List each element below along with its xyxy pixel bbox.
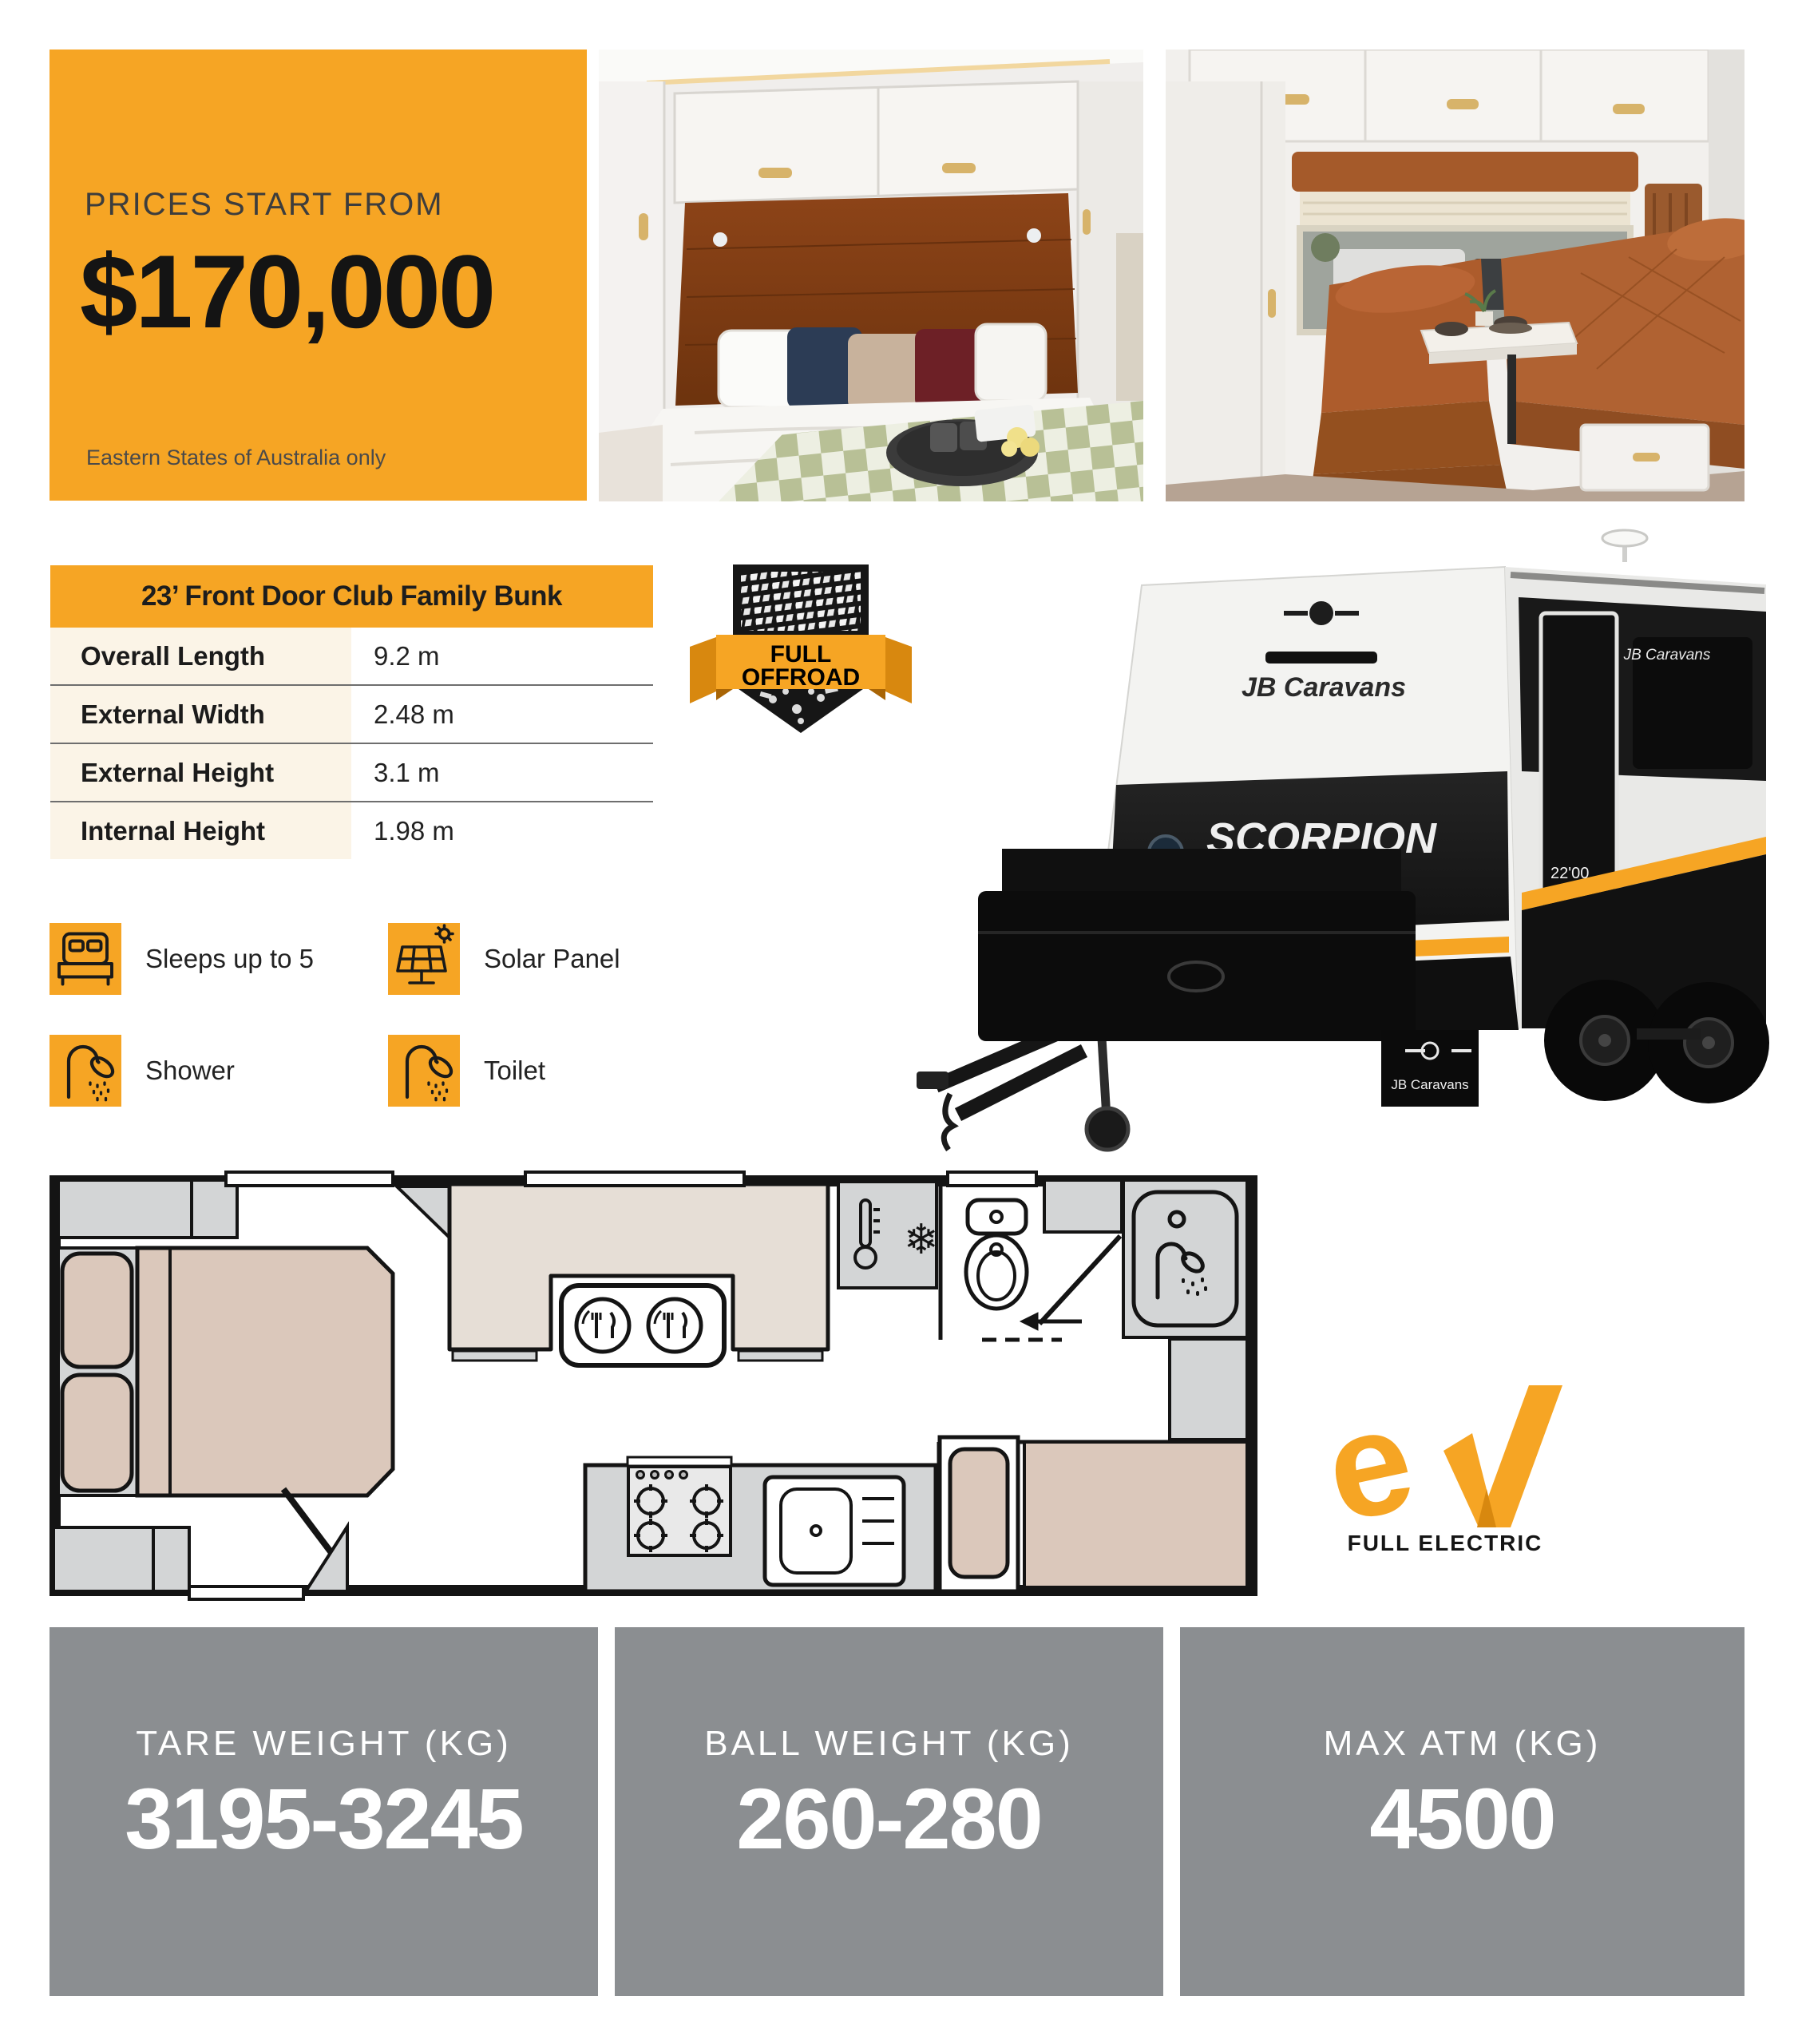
spec-label: External Height	[50, 744, 351, 801]
feature-shower: Shower	[50, 1035, 235, 1107]
price-eyebrow: PRICES START FROM	[85, 187, 444, 223]
spec-value: 1.98 m	[351, 802, 653, 859]
lounge-photo-art	[1166, 50, 1744, 501]
caravan-brand-side: JB Caravans	[1623, 647, 1711, 664]
feature-toilet: Toilet	[388, 1035, 545, 1107]
floorplan-drawing: ❄	[50, 1170, 1257, 1601]
table-row: Overall Length 9.2 m	[50, 628, 653, 684]
sink-icon	[765, 1477, 904, 1585]
feature-label: Solar Panel	[484, 944, 620, 974]
brochure-page: PRICES START FROM $170,000 Eastern State…	[0, 0, 1794, 2044]
weight-value: 260-280	[736, 1769, 1041, 1868]
feature-label: Toilet	[484, 1056, 545, 1086]
feature-label: Sleeps up to 5	[145, 944, 314, 974]
tare-weight-box: TARE WEIGHT (KG) 3195-3245	[50, 1627, 598, 1996]
snowflake-icon: ❄	[904, 1217, 939, 1263]
floorplan: ❄	[50, 1170, 1257, 1601]
ev-logo-label: FULL ELECTRIC	[1317, 1531, 1573, 1556]
feature-sleeps: Sleeps up to 5	[50, 923, 314, 995]
spec-value: 2.48 m	[351, 686, 653, 743]
spec-table-title: 23’ Front Door Club Family Bunk	[50, 565, 653, 628]
weight-label: TARE WEIGHT (KG)	[136, 1724, 512, 1764]
badge-line2: OFFROAD	[742, 664, 860, 691]
spec-label: External Width	[50, 686, 351, 743]
spec-value: 9.2 m	[351, 628, 653, 684]
shower-icon	[388, 1035, 460, 1107]
max-atm-box: MAX ATM (KG) 4500	[1180, 1627, 1744, 1996]
lounge-photo	[1166, 50, 1744, 501]
weight-label: BALL WEIGHT (KG)	[704, 1724, 1074, 1764]
table-row: External Width 2.48 m	[50, 684, 653, 743]
weight-label: MAX ATM (KG)	[1324, 1724, 1602, 1764]
table-row: Internal Height 1.98 m	[50, 801, 653, 859]
toilet-icon	[966, 1200, 1027, 1309]
caravan-photo: JB Caravans SCORPION STING AIR JB Carava…	[902, 517, 1794, 1156]
ev-logo: e FULL ELECTRIC	[1317, 1385, 1573, 1556]
ev-logo-e: e	[1325, 1385, 1427, 1529]
offroad-badge: FULL OFFROAD	[685, 557, 917, 749]
ball-weight-box: BALL WEIGHT (KG) 260-280	[615, 1627, 1163, 1996]
weight-value: 3195-3245	[125, 1769, 522, 1868]
spec-label: Overall Length	[50, 628, 351, 684]
spec-table: 23’ Front Door Club Family Bunk Overall …	[50, 565, 653, 859]
offroad-badge-icon: FULL OFFROAD	[685, 557, 917, 749]
spec-label: Internal Height	[50, 802, 351, 859]
caravan-art: JB Caravans SCORPION STING AIR JB Carava…	[902, 517, 1794, 1156]
weight-value: 4500	[1369, 1769, 1554, 1868]
feature-label: Shower	[145, 1056, 235, 1086]
spec-value: 3.1 m	[351, 744, 653, 801]
plate-icon	[576, 1299, 629, 1352]
price-box: PRICES START FROM $170,000 Eastern State…	[50, 50, 587, 501]
caravan-brand-front: JB Caravans	[1242, 672, 1406, 703]
ev-logo-mark: e	[1325, 1385, 1565, 1529]
plate-icon	[648, 1299, 701, 1352]
caravan-size-decal: 22'00	[1550, 865, 1589, 882]
feature-solar: Solar Panel	[388, 923, 620, 995]
bedroom-photo-art	[599, 50, 1143, 501]
price-note: Eastern States of Australia only	[86, 446, 386, 470]
bed-icon	[50, 923, 121, 995]
bedroom-photo	[599, 50, 1143, 501]
price-value: $170,000	[80, 232, 493, 351]
table-row: External Height 3.1 m	[50, 743, 653, 801]
shower-icon	[50, 1035, 121, 1107]
solar-panel-icon	[388, 923, 460, 995]
caravan-mudflap-label: JB Caravans	[1391, 1077, 1468, 1092]
